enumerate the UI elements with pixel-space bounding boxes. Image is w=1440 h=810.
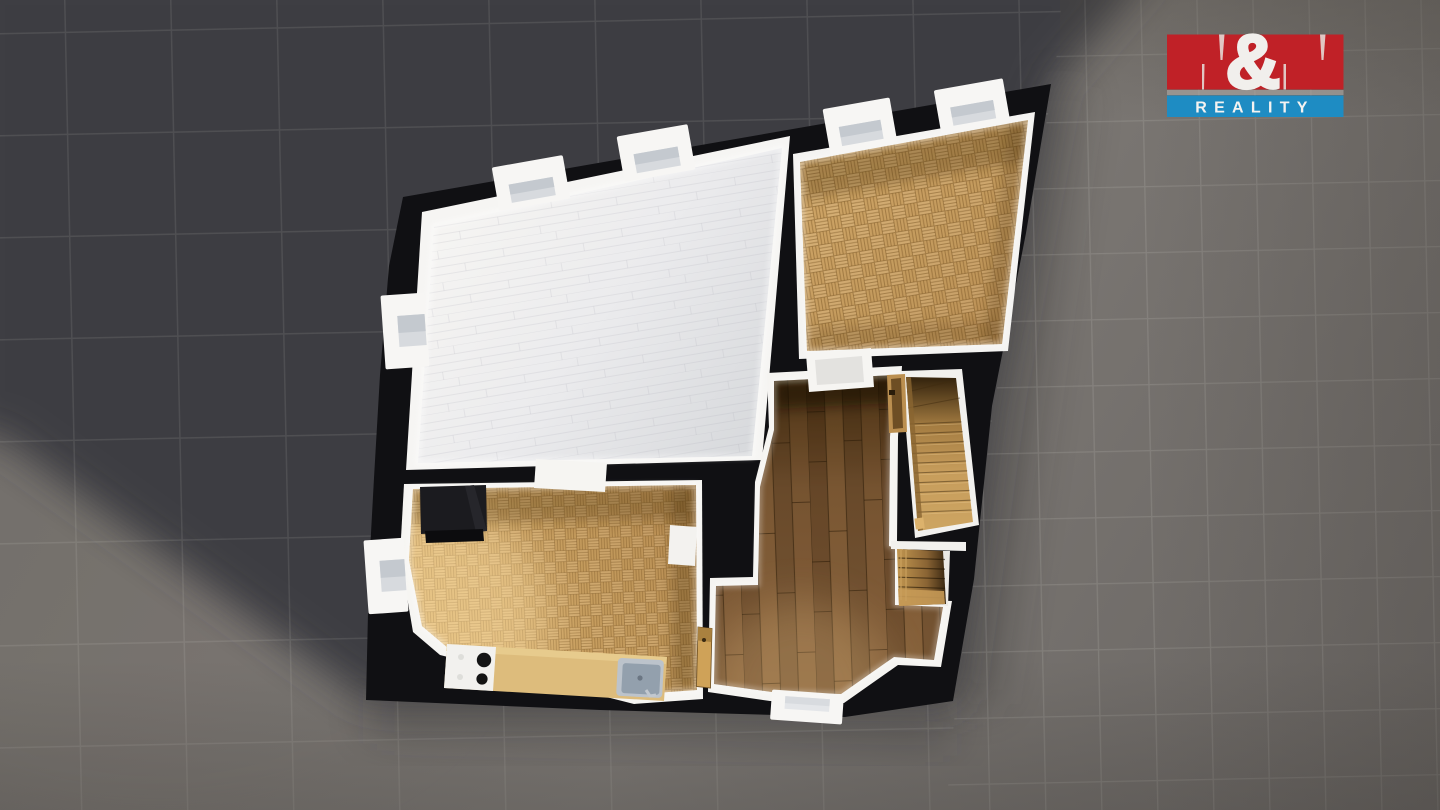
svg-text:REALITY: REALITY [1195,100,1315,117]
